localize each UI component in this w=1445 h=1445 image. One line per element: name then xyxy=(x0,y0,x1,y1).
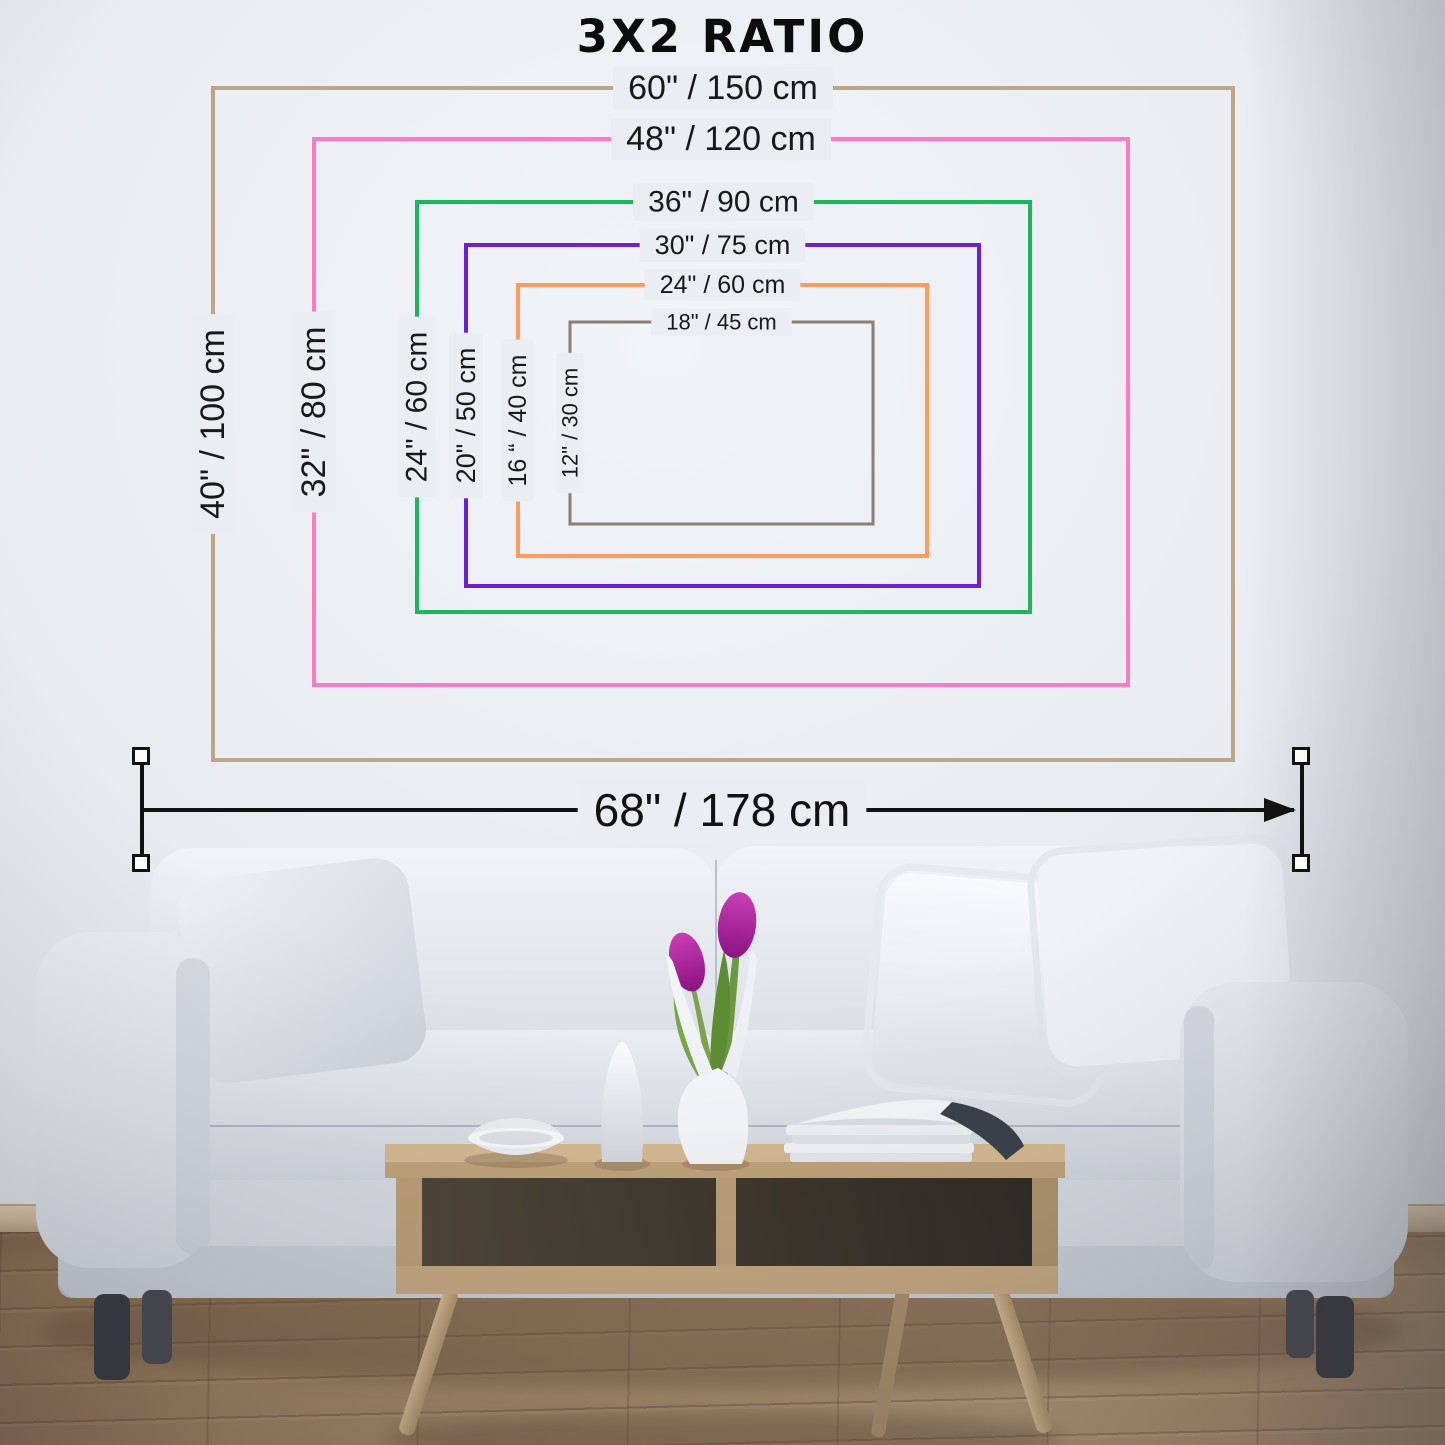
svg-text:32" / 80 cm: 32" / 80 cm xyxy=(295,327,333,498)
handle-square-icon xyxy=(134,749,149,764)
svg-text:24" / 60 cm: 24" / 60 cm xyxy=(660,271,786,299)
svg-text:40" / 100 cm: 40" / 100 cm xyxy=(194,329,232,519)
height-label-30x20: 20" / 50 cm xyxy=(449,333,482,499)
width-label-36x24: 36" / 90 cm xyxy=(633,183,814,220)
width-label-18x12: 18" / 45 cm xyxy=(651,308,792,335)
height-label-60x40: 40" / 100 cm xyxy=(192,314,234,534)
size-rect-48x32 xyxy=(314,139,1128,685)
height-label-18x12: 12" / 30 cm xyxy=(556,353,583,494)
page-title: 3X2 RATIO xyxy=(0,10,1445,63)
svg-text:48" / 120 cm: 48" / 120 cm xyxy=(626,120,816,158)
svg-text:68" / 178 cm: 68" / 178 cm xyxy=(594,784,851,836)
handle-square-icon xyxy=(1294,749,1309,764)
wall-width-dimension: 68" / 178 cm xyxy=(134,749,1309,871)
width-label-60x40: 60" / 150 cm xyxy=(613,67,833,109)
size-rect-18x12 xyxy=(570,322,873,524)
svg-text:60" / 150 cm: 60" / 150 cm xyxy=(628,69,818,107)
arrow-right-icon xyxy=(1264,798,1296,822)
svg-text:24" / 60 cm: 24" / 60 cm xyxy=(401,332,434,483)
svg-text:16 “ / 40 cm: 16 “ / 40 cm xyxy=(504,355,532,487)
wall-width-label: 68" / 178 cm xyxy=(578,782,867,837)
handle-square-icon xyxy=(134,856,149,871)
height-label-36x24: 24" / 60 cm xyxy=(398,317,435,498)
height-label-48x32: 32" / 80 cm xyxy=(293,312,335,513)
svg-text:36" / 90 cm: 36" / 90 cm xyxy=(648,186,799,219)
svg-text:12" / 30 cm: 12" / 30 cm xyxy=(558,368,583,479)
size-diagram: 60" / 150 cm40" / 100 cm48" / 120 cm32" … xyxy=(0,0,1445,1445)
svg-text:20" / 50 cm: 20" / 50 cm xyxy=(451,348,481,484)
width-label-24x16: 24" / 60 cm xyxy=(645,270,801,301)
width-label-30x20: 30" / 75 cm xyxy=(640,228,806,261)
size-guide-image: 60" / 150 cm40" / 100 cm48" / 120 cm32" … xyxy=(0,0,1445,1445)
handle-square-icon xyxy=(1294,856,1309,871)
height-label-24x16: 16 “ / 40 cm xyxy=(503,340,534,502)
svg-text:18" / 45 cm: 18" / 45 cm xyxy=(666,310,777,335)
width-label-48x32: 48" / 120 cm xyxy=(611,118,831,160)
svg-text:30" / 75 cm: 30" / 75 cm xyxy=(655,230,791,260)
